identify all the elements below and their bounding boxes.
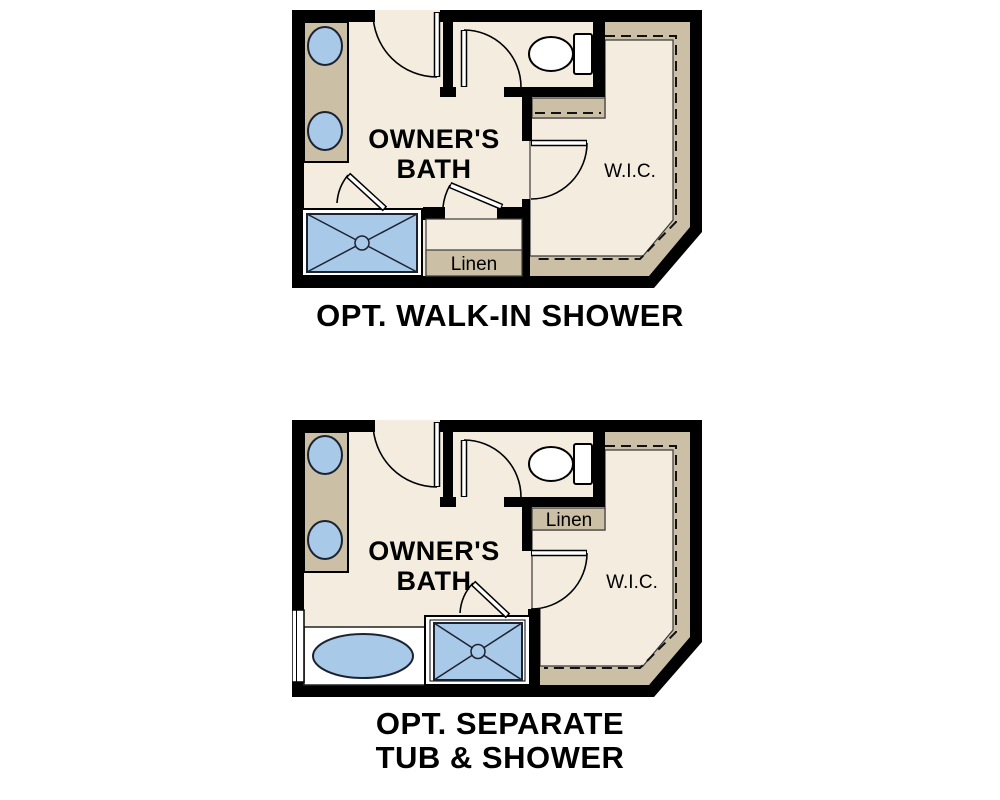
floor-plan-separate-tub-shower: Linen — [292, 420, 702, 697]
linen-label: Linen — [451, 254, 498, 275]
plan-title-separate-tub-shower: OPT. SEPARATE TUB & SHOWER — [0, 707, 1000, 775]
room-label-wic: W.I.C. — [604, 161, 656, 182]
toilet-icon — [529, 34, 592, 74]
shower — [425, 616, 530, 685]
linen-label: Linen — [546, 510, 593, 531]
vanity-counter — [304, 432, 348, 572]
plan-title-line: TUB & SHOWER — [0, 741, 1000, 775]
linen-closet: Linen — [532, 508, 605, 531]
sink-icon — [308, 436, 342, 474]
entry-opening — [375, 10, 440, 22]
shower-drain-icon — [471, 645, 485, 659]
vanity-counter — [304, 22, 348, 162]
entry-opening — [375, 420, 440, 432]
room-label-owners-bath: OWNER'S — [368, 124, 499, 154]
shower-drain-icon — [355, 236, 369, 250]
wic-shelf-strip — [532, 98, 605, 118]
soaking-tub — [304, 627, 425, 685]
toilet-icon — [529, 444, 592, 484]
room-label-owners-bath: BATH — [397, 566, 472, 596]
floor-plan-walk-in-shower: Linen — [292, 10, 702, 288]
plan-title-walk-in-shower: OPT. WALK-IN SHOWER — [0, 299, 1000, 333]
room-label-owners-bath: BATH — [397, 154, 472, 184]
room-label-wic: W.I.C. — [606, 572, 658, 593]
sink-icon — [308, 112, 342, 150]
walk-in-shower — [302, 209, 422, 276]
sink-icon — [308, 27, 342, 65]
tub-icon — [313, 634, 413, 678]
linen-closet: Linen — [426, 219, 522, 276]
sink-icon — [308, 521, 342, 559]
room-label-owners-bath: OWNER'S — [368, 536, 499, 566]
plan-title-line: OPT. SEPARATE — [0, 707, 1000, 741]
window-icon — [292, 610, 304, 682]
page: Linen — [0, 0, 1000, 800]
